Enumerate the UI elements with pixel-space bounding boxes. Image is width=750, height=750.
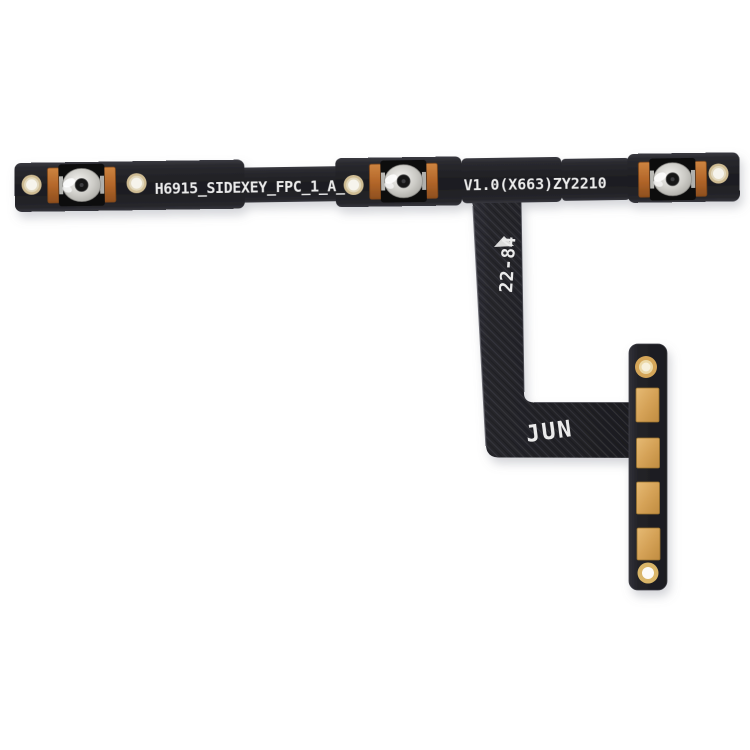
contact-pad-4 bbox=[637, 528, 660, 560]
contact-pad-2 bbox=[637, 438, 660, 468]
tactile-switch-power bbox=[638, 158, 707, 201]
flex-cable-illustration: JUN 22-84 bbox=[0, 0, 750, 750]
connector-hole-bottom bbox=[638, 563, 659, 584]
connector-strip bbox=[629, 344, 667, 590]
product-photo-flex-cable: JUN 22-84 bbox=[0, 0, 750, 750]
contact-pad-1 bbox=[636, 388, 659, 422]
tactile-switch-volume-down bbox=[369, 160, 438, 203]
silkscreen-part-number: H6915_SIDEXEY_FPC_1_A_ bbox=[155, 177, 346, 198]
silkscreen-date-code: 22-84 bbox=[496, 235, 520, 293]
connector-hole-top bbox=[635, 356, 657, 378]
contact-pad-3 bbox=[637, 482, 660, 514]
flex-cable-body: JUN 22-84 bbox=[14, 152, 740, 590]
side-key-strip: H6915_SIDEXEY_FPC_1_A_ V1.0(X663)ZY2210 bbox=[14, 152, 740, 212]
silkscreen-version-code: V1.0(X663)ZY2210 bbox=[464, 174, 607, 194]
tactile-switch-volume-up bbox=[47, 164, 116, 207]
